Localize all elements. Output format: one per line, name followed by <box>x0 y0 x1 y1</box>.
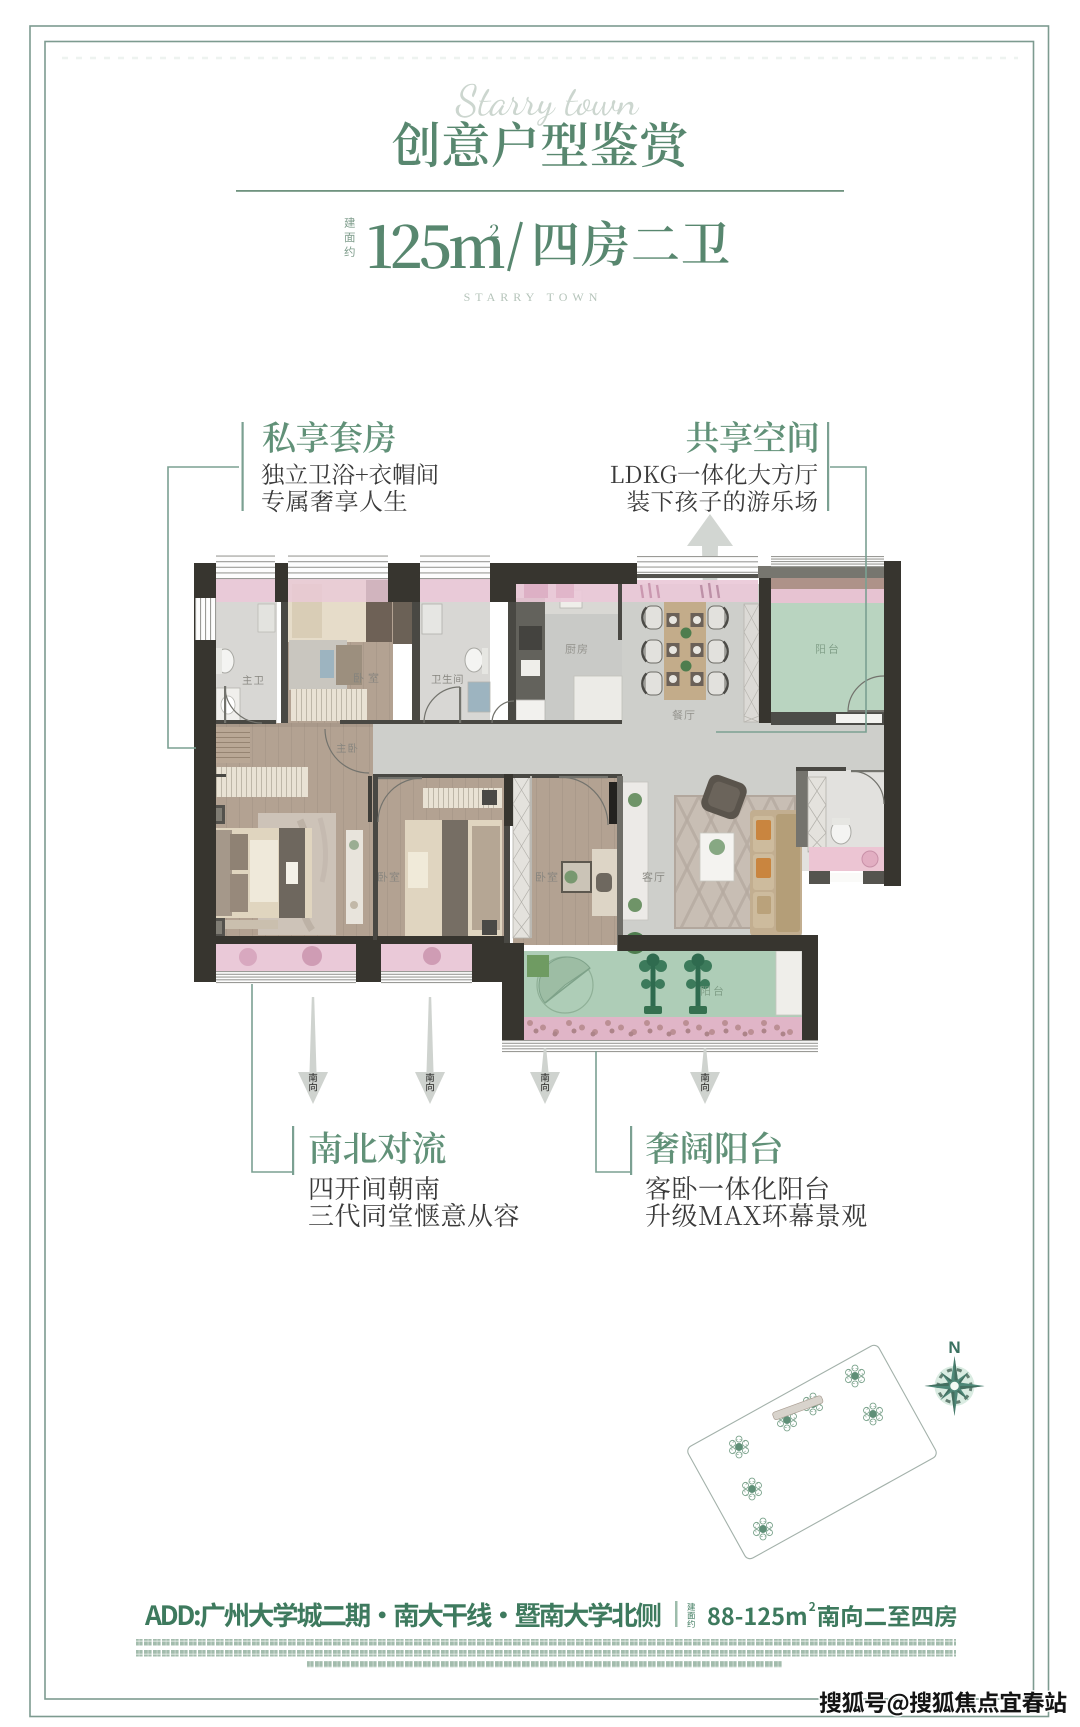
svg-text:N: N <box>948 1338 960 1357</box>
svg-text:STARRY TOWN: STARRY TOWN <box>464 290 603 304</box>
